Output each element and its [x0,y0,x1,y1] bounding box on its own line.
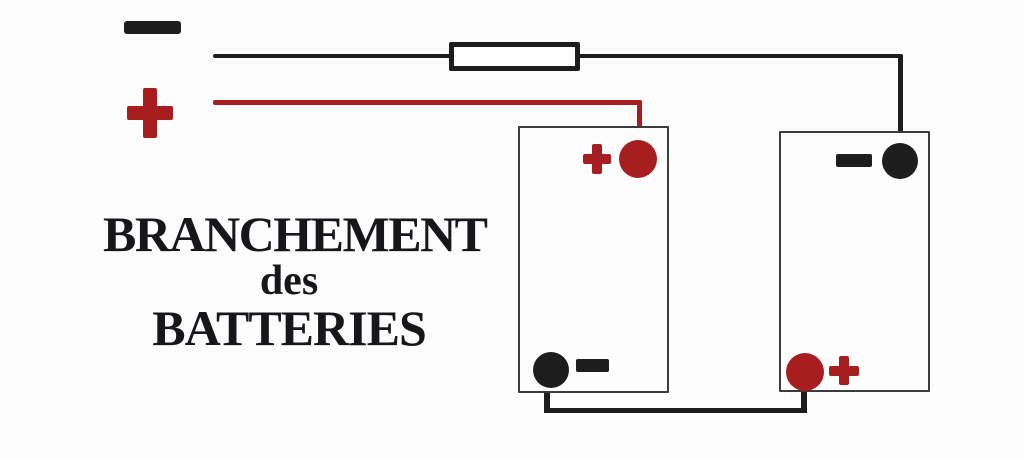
series-link-wire-right-vertical [801,391,807,413]
title-line-3: BATTERIES [103,302,475,354]
diagram-title: BRANCHEMENT des BATTERIES [103,208,475,354]
battery-1 [518,126,669,393]
battery-2-top-negative-terminal [882,143,918,179]
battery-2-bottom-plus-icon [829,356,859,385]
battery-2-bottom-positive-terminal [786,353,824,391]
positive-wire-horizontal [213,100,642,105]
battery-2 [779,131,930,392]
wiring-diagram-canvas: BRANCHEMENT des BATTERIES [0,0,1024,459]
fuse-symbol [449,42,580,71]
positive-wire-vertical [637,101,642,129]
battery-1-bottom-minus-icon [576,359,609,372]
battery-1-top-positive-terminal [619,140,657,178]
series-link-wire-horizontal [544,408,807,413]
negative-wire-vertical [898,55,903,135]
negative-lead-minus-icon [124,21,181,34]
battery-2-top-minus-icon [836,154,872,167]
battery-1-bottom-negative-terminal [533,352,569,388]
battery-1-top-plus-icon [583,144,611,174]
positive-lead-plus-icon [127,88,173,138]
title-line-2: des [103,260,475,302]
title-line-1: BRANCHEMENT [103,208,475,260]
